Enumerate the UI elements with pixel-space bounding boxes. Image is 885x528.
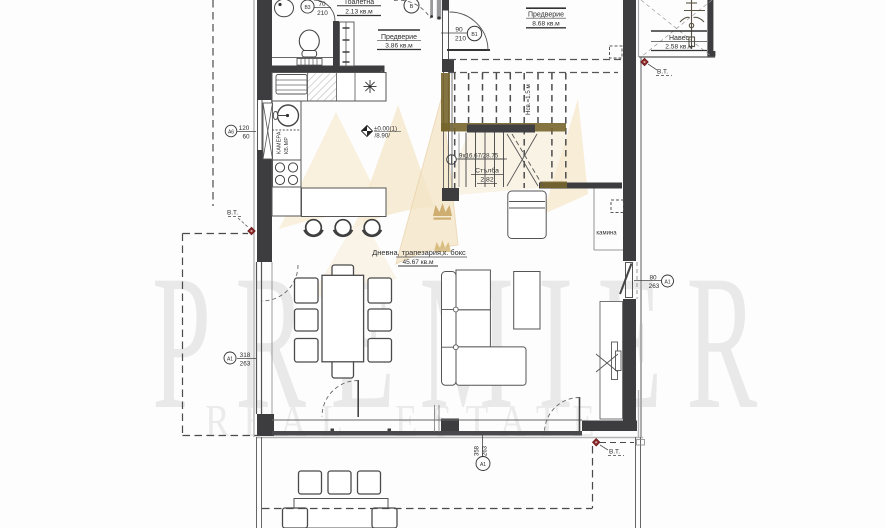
svg-text:318: 318 bbox=[240, 352, 251, 359]
svg-text:8.68 кв.м: 8.68 кв.м bbox=[532, 21, 560, 28]
svg-text:А6: А6 bbox=[228, 130, 234, 136]
svg-text:Нсв.=1.5 м: Нсв.=1.5 м bbox=[525, 84, 532, 115]
svg-text:60: 60 bbox=[242, 134, 250, 141]
svg-text:90: 90 bbox=[455, 27, 463, 34]
svg-text:80: 80 bbox=[649, 275, 657, 282]
svg-text:В.Т.: В.Т. bbox=[657, 69, 668, 76]
svg-text:120: 120 bbox=[239, 125, 250, 132]
svg-text:В.Т.: В.Т. bbox=[609, 449, 620, 456]
svg-text:А1: А1 bbox=[664, 280, 670, 286]
svg-text:358: 358 bbox=[475, 445, 481, 456]
svg-text:В3: В3 bbox=[304, 5, 310, 11]
svg-text:В.Т.: В.Т. bbox=[227, 210, 238, 217]
svg-text:камина: камина bbox=[596, 231, 617, 237]
svg-text:263: 263 bbox=[483, 445, 489, 456]
svg-text:КБ.МР: КБ.МР bbox=[284, 137, 290, 154]
svg-text:70: 70 bbox=[318, 1, 326, 8]
svg-text:263: 263 bbox=[240, 361, 251, 368]
svg-text:210: 210 bbox=[317, 10, 328, 17]
svg-text:/8.90/: /8.90/ bbox=[375, 133, 391, 140]
svg-text:КАМЕРА: КАМЕРА bbox=[277, 131, 283, 154]
svg-text:Дневна, трапезария,к. бокс: Дневна, трапезария,к. бокс bbox=[372, 248, 466, 257]
svg-text:А1: А1 bbox=[227, 357, 233, 363]
svg-text:3.86 кв.м: 3.86 кв.м bbox=[385, 43, 413, 50]
svg-text:45.67 кв.м: 45.67 кв.м bbox=[402, 259, 434, 266]
svg-text:В: В bbox=[410, 4, 414, 10]
svg-text:210: 210 bbox=[455, 36, 466, 43]
svg-text:263: 263 bbox=[649, 283, 660, 290]
svg-text:Стълба: Стълба bbox=[475, 167, 499, 175]
svg-text:В1: В1 bbox=[471, 32, 477, 38]
svg-text:2.82: 2.82 bbox=[480, 177, 493, 184]
svg-text:Навес: Навес bbox=[669, 35, 689, 42]
svg-text:Тоалетна: Тоалетна bbox=[344, 0, 374, 6]
svg-text:Предверие: Предверие bbox=[381, 34, 417, 41]
svg-text:А1: А1 bbox=[480, 462, 486, 468]
svg-text:Предверие: Предверие bbox=[528, 12, 564, 19]
svg-text:2.58 кв.м: 2.58 кв.м bbox=[665, 44, 693, 51]
svg-text:2.13 кв.м: 2.13 кв.м bbox=[345, 9, 373, 16]
svg-text:9x16.67/28.75: 9x16.67/28.75 bbox=[459, 153, 499, 160]
